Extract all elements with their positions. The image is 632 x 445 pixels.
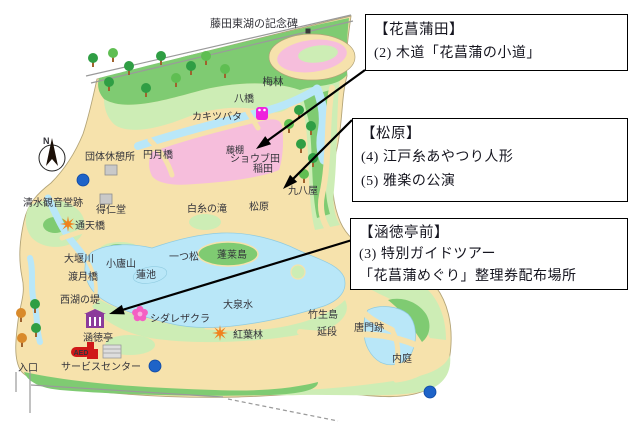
building-icon: [105, 165, 117, 175]
annotation-line: (3) 特別ガイドツアー: [359, 244, 619, 266]
map-label-fujita-toko-monument: 藤田東湖の記念碑: [210, 16, 298, 30]
maple-star-icon: [212, 325, 228, 341]
toilet-icon: [149, 360, 161, 372]
map-label-daisensui: 大泉水: [223, 298, 253, 311]
map-label-naitei: 内庭: [392, 352, 412, 365]
map-label-shidarezakura: シダレザクラ: [150, 312, 210, 325]
annotation-title: 【花菖蒲田】: [374, 18, 619, 42]
aed-label: AED: [74, 350, 89, 357]
map-label-oigawa: 大堰川: [64, 252, 94, 265]
map-label-nobedan: 延段: [317, 325, 337, 338]
map-label-matsubara: 松原: [249, 200, 269, 213]
island-small: [291, 265, 305, 279]
map-label-engetsukyo: 円月橋: [143, 148, 173, 161]
annotation-title: 【涵徳亭前】: [359, 222, 619, 244]
map-label-karamon-ato: 唐門跡: [354, 321, 384, 334]
compass-north-label: N: [43, 136, 50, 146]
monument-dot-icon: [306, 29, 311, 34]
map-label-shorozan: 小廬山: [106, 257, 136, 270]
maple-star-icon: [60, 216, 76, 232]
map-label-kuhachiya: 九八屋: [288, 185, 318, 197]
tree-icon: [108, 48, 118, 62]
building-icon: [100, 194, 112, 204]
map-label-horaijima: 蓬莱島: [217, 248, 247, 261]
map-label-shiraito-falls: 白糸の滝: [187, 202, 227, 215]
annotation-line: (2) 木道「花菖蒲の小道」: [374, 42, 619, 66]
map-label-kantokutei: 涵徳亭: [83, 331, 113, 344]
map-label-momijibayashi: 紅葉林: [233, 328, 263, 341]
annotation-line: (5) 雅楽の公演: [361, 170, 619, 194]
map-label-kiyomizu-kannondo-ato: 清水観音堂跡: [23, 196, 83, 209]
iris-flower-icon: [256, 107, 268, 120]
screenshot-root: NAED藤田東湖の記念碑梅林八橋カキツバタ藤棚ショウブ田稲田九八屋団体休憩所円月…: [0, 0, 632, 445]
annotation-title: 【松原】: [361, 122, 619, 146]
map-label-hitotsumatsu: 一つ松: [169, 250, 199, 263]
toilet-icon: [77, 174, 89, 186]
map-label-hasuike: 蓮池: [136, 268, 156, 281]
annotation-line: 「花菖蒲めぐり」整理券配布場所: [359, 266, 619, 288]
map-label-seiko-no-tsutsumi: 西湖の堤: [60, 294, 100, 306]
map-label-service-center: サービスセンター: [61, 361, 141, 373]
green-shiraito: [189, 214, 221, 230]
map-label-bairin: 梅林: [263, 75, 284, 88]
map-label-tokujindo: 得仁堂: [96, 204, 126, 216]
toilet-icon: [424, 386, 436, 398]
tree-icon: [88, 53, 98, 67]
annotation-line: (4) 江戸糸あやつり人形: [361, 146, 619, 170]
annotation-box-matsubara: 【松原】 (4) 江戸糸あやつり人形 (5) 雅楽の公演: [352, 118, 628, 202]
map-label-chikubushima: 竹生島: [308, 308, 338, 321]
service-building-icon: [103, 345, 121, 358]
map-label-togetsukyo: 渡月橋: [68, 270, 98, 283]
map-label-inada: 稲田: [253, 163, 273, 175]
annotation-box-kantokutei-mae: 【涵徳亭前】 (3) 特別ガイドツアー 「花菖蒲めぐり」整理券配布場所: [350, 218, 628, 290]
map-label-yatsuhashi: 八橋: [234, 92, 254, 105]
map-label-group-rest-area: 団体休憩所: [85, 150, 135, 163]
compass-icon: N: [39, 136, 65, 171]
map-label-tsutenkyo: 通天橋: [75, 219, 105, 232]
map-label-entrance: 入口: [18, 363, 38, 374]
annotation-box-hanashobuda: 【花菖蒲田】 (2) 木道「花菖蒲の小道」: [365, 14, 628, 71]
map-label-kakitsubata: カキツバタ: [192, 111, 242, 123]
aed-icon: AED: [71, 347, 91, 357]
